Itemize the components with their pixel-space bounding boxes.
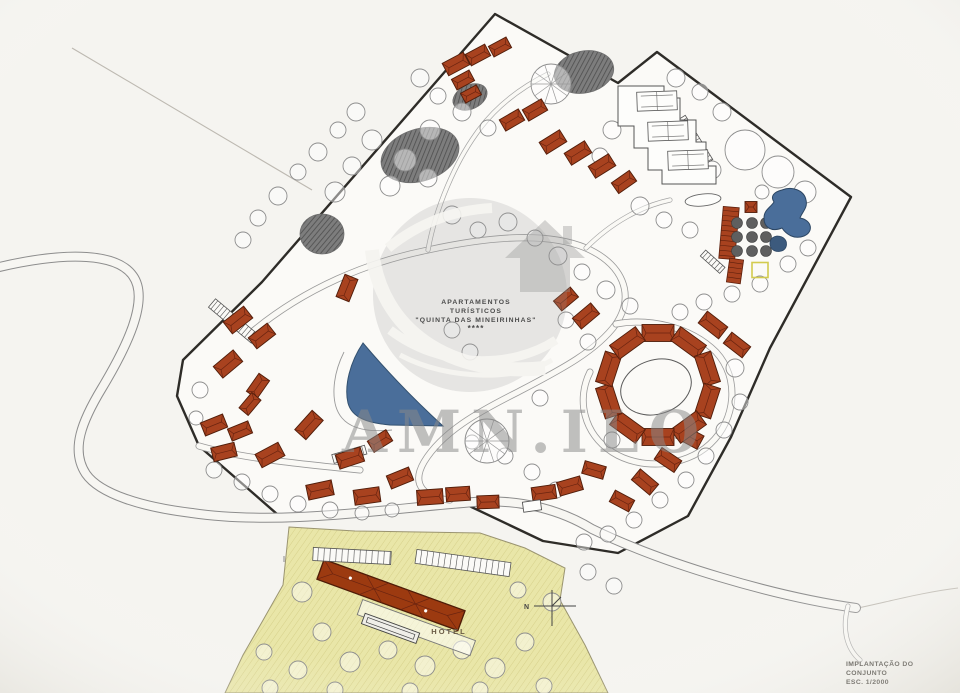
title-line-3: "QUINTA DAS MINEIRINHAS" bbox=[415, 317, 536, 324]
tree bbox=[380, 176, 400, 196]
tree bbox=[262, 486, 278, 502]
tree bbox=[256, 644, 272, 660]
tree bbox=[606, 578, 622, 594]
tree bbox=[713, 103, 731, 121]
caption-line-2: CONJUNTO bbox=[846, 670, 887, 677]
tree bbox=[580, 564, 596, 580]
tree bbox=[385, 503, 399, 517]
tree bbox=[682, 222, 698, 238]
tree bbox=[631, 197, 649, 215]
apartment-building bbox=[477, 495, 499, 509]
tree bbox=[678, 472, 694, 488]
tennis-court bbox=[637, 91, 678, 111]
tree bbox=[480, 120, 496, 136]
tree bbox=[415, 656, 435, 676]
watermark-text: AMN.ILO bbox=[341, 398, 709, 466]
clipped-tree bbox=[761, 246, 772, 257]
tree bbox=[262, 680, 278, 693]
kiddie-pool bbox=[770, 236, 787, 251]
watermark-chimney bbox=[563, 226, 572, 244]
tree bbox=[672, 304, 688, 320]
north-label: N bbox=[524, 604, 529, 611]
tree bbox=[485, 658, 505, 678]
tree bbox=[394, 149, 416, 171]
caption-line-3: ESC. 1/2000 bbox=[846, 679, 889, 686]
tree bbox=[762, 156, 794, 188]
tree bbox=[411, 69, 429, 87]
tree bbox=[347, 103, 365, 121]
clipped-tree bbox=[747, 232, 758, 243]
apartment-building bbox=[745, 202, 757, 213]
dark-vegetation bbox=[300, 214, 344, 254]
clipped-tree bbox=[732, 246, 743, 257]
tree bbox=[355, 506, 369, 520]
tree bbox=[322, 502, 338, 518]
tree bbox=[453, 103, 471, 121]
tree bbox=[755, 185, 769, 199]
apartment-building bbox=[417, 489, 444, 506]
site-plan-page: AMN.ILO APARTAMENTOS TURÍSTICOS "QUINTA … bbox=[0, 0, 960, 693]
tree bbox=[600, 526, 616, 542]
tree bbox=[626, 512, 642, 528]
tree bbox=[574, 264, 590, 280]
tree bbox=[343, 157, 361, 175]
clipped-tree bbox=[747, 218, 758, 229]
site-plan-drawing: AMN.ILO APARTAMENTOS TURÍSTICOS "QUINTA … bbox=[0, 0, 960, 693]
tree bbox=[313, 623, 331, 641]
tree bbox=[780, 256, 796, 272]
title-line-1: APARTAMENTOS bbox=[441, 299, 510, 306]
tree bbox=[340, 652, 360, 672]
tree bbox=[732, 394, 748, 410]
tree bbox=[379, 641, 397, 659]
tree bbox=[726, 359, 744, 377]
tree bbox=[192, 382, 208, 398]
tree bbox=[309, 143, 327, 161]
tree bbox=[597, 281, 615, 299]
tree bbox=[290, 496, 306, 512]
tree bbox=[725, 130, 765, 170]
clipped-tree bbox=[747, 246, 758, 257]
tree bbox=[290, 164, 306, 180]
tree bbox=[420, 120, 440, 140]
tree bbox=[325, 182, 345, 202]
clipped-tree bbox=[761, 232, 772, 243]
ring-apartment-building bbox=[642, 325, 674, 342]
clipped-tree bbox=[732, 232, 743, 243]
tree bbox=[622, 298, 638, 314]
tree bbox=[692, 84, 708, 100]
tree bbox=[716, 422, 732, 438]
tree bbox=[430, 88, 446, 104]
tree bbox=[510, 582, 526, 598]
tennis-court bbox=[648, 121, 689, 141]
tree bbox=[235, 232, 251, 248]
tennis-court bbox=[668, 150, 709, 170]
pergola bbox=[726, 258, 743, 284]
tree bbox=[330, 122, 346, 138]
pergola-outline bbox=[726, 258, 743, 284]
tree bbox=[206, 462, 222, 478]
hotel-label: HOTEL bbox=[431, 627, 466, 636]
tree bbox=[656, 212, 672, 228]
tree bbox=[576, 534, 592, 550]
service-building bbox=[522, 500, 541, 512]
apartment-building bbox=[353, 487, 381, 505]
tree bbox=[752, 276, 768, 292]
tree bbox=[667, 69, 685, 87]
tree bbox=[419, 169, 437, 187]
title-line-2: TURÍSTICOS bbox=[450, 306, 502, 315]
tree bbox=[536, 678, 552, 693]
tree bbox=[724, 286, 740, 302]
caption-line-1: IMPLANTAÇÃO DO bbox=[846, 659, 913, 668]
tree bbox=[250, 210, 266, 226]
apartment-building bbox=[531, 484, 557, 501]
apartment-building bbox=[446, 486, 471, 502]
tree bbox=[524, 464, 540, 480]
tree bbox=[234, 474, 250, 490]
tree bbox=[652, 492, 668, 508]
tree bbox=[696, 294, 712, 310]
title-stars: **** bbox=[468, 324, 485, 333]
tree bbox=[269, 187, 287, 205]
clipped-tree bbox=[732, 218, 743, 229]
tree bbox=[292, 582, 312, 602]
pinwheel-tree bbox=[531, 64, 571, 104]
tree bbox=[362, 130, 382, 150]
tree bbox=[580, 334, 596, 350]
tree bbox=[516, 633, 534, 651]
tree bbox=[800, 240, 816, 256]
tree bbox=[289, 661, 307, 679]
